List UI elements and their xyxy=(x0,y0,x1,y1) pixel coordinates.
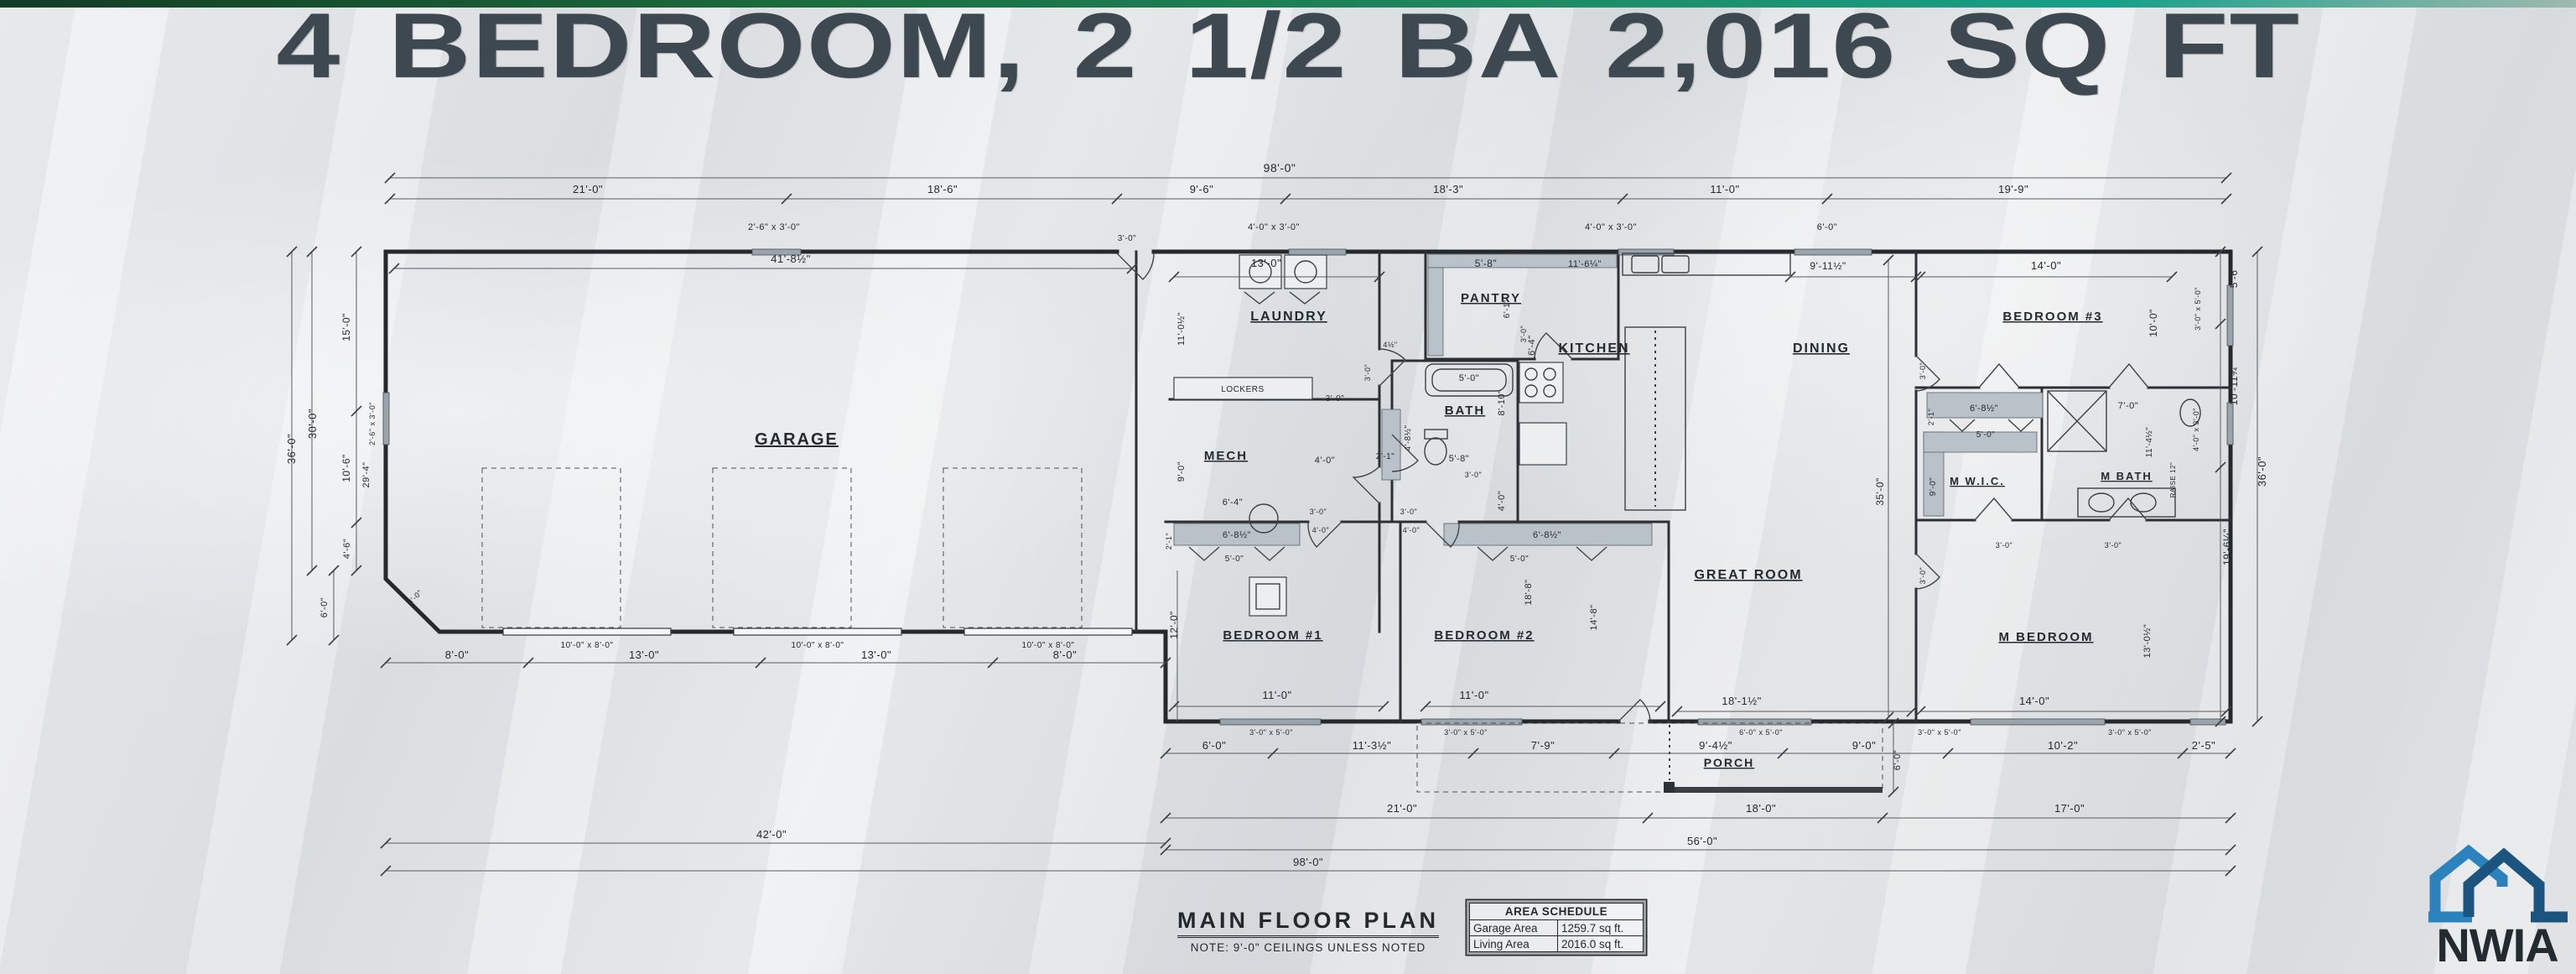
dim-label: 5'-8" xyxy=(1449,454,1469,464)
area-schedule-table: AREA SCHEDULE Garage Area 1259.7 sq ft. … xyxy=(1469,903,1644,952)
dim-label: 11'-0" xyxy=(1459,689,1488,701)
nwia-logo: NWIA xyxy=(2422,833,2573,969)
plan-caption: MAIN FLOOR PLAN NOTE: 9'-0" CEILINGS UNL… xyxy=(1174,908,1442,954)
dim-label: 5'-0" xyxy=(1225,555,1244,564)
plan-note: NOTE: 9'-0" CEILINGS UNLESS NOTED xyxy=(1174,941,1442,954)
dim-label: 6'-8½" xyxy=(1533,530,1561,540)
dim-label: 3'-0" xyxy=(1363,364,1372,381)
dim-label: 4'-0" x 3'-0" xyxy=(2192,408,2200,451)
dim-label: 8'-0" xyxy=(445,648,469,661)
garage-doors xyxy=(482,468,1132,635)
dim-label: 10'-2" xyxy=(2048,739,2078,752)
dim-label: 2'-6" x 3'-0" xyxy=(368,402,377,445)
room-label: BEDROOM #2 xyxy=(1434,628,1534,643)
dim-label: 10'-0" xyxy=(2148,309,2159,337)
dim-label: 9'-0" xyxy=(1852,739,1876,752)
dim-label: 3'-0" xyxy=(1326,394,1344,404)
toilet-icon xyxy=(1425,430,1447,465)
furnace-icon xyxy=(1249,577,1286,616)
dim-label: 17'-0" xyxy=(2054,802,2085,815)
room-label: LAUNDRY xyxy=(1250,310,1327,324)
dim-label: 4'-0" xyxy=(1312,526,1329,534)
dim-label: 10'-11¾" xyxy=(2228,363,2240,405)
dim-label: 9'-11½" xyxy=(1810,260,1846,272)
dim-label: 14'-8" xyxy=(1589,604,1599,630)
dim-label: 3'-0" x 5'-0" xyxy=(2194,287,2202,331)
dim-label: 6'-0" xyxy=(1817,222,1837,232)
dim-label: 3'-0" xyxy=(1118,234,1136,243)
room-label: PANTRY xyxy=(1461,291,1521,305)
room-label: KITCHEN xyxy=(1558,341,1629,356)
dim-label: 9'-0" xyxy=(1176,461,1187,482)
floor-plan: GARAGELAUNDRYMECHPANTRYKITCHENDININGBATH… xyxy=(0,0,2576,974)
room-label: MECH xyxy=(1204,449,1248,463)
dim-label: 42'-0" xyxy=(756,828,787,841)
dim-label: 14'-0" xyxy=(2031,259,2061,272)
dim-label: 6'-0" xyxy=(1893,750,1903,770)
dim-label: 30'-0" xyxy=(306,409,319,439)
dim-label: 5'-0" xyxy=(1510,555,1529,564)
dim-label: 8'-0" xyxy=(1053,648,1077,661)
dim-label: 18'-3" xyxy=(1433,183,1463,195)
dim-label: 11'-6¼" xyxy=(1568,259,1602,269)
dim-label: 11'-3½" xyxy=(1353,739,1392,752)
dim-label: 3'-0" x 5'-0" xyxy=(1918,728,1961,737)
dim-label: 36'-0" xyxy=(285,434,298,464)
dim-label: 8'-10" xyxy=(1497,389,1507,415)
dim-label: 12'-0" xyxy=(1168,611,1180,639)
dim-label: 6'-8½" xyxy=(1223,530,1251,540)
dim-label: 11'-0½" xyxy=(1176,312,1187,346)
dim-label: 16'-4" xyxy=(1527,335,1537,361)
dim-label: 7'-9" xyxy=(1531,739,1555,752)
room-label: GREAT ROOM xyxy=(1694,568,1802,582)
dim-label: 13'-0" xyxy=(861,648,891,661)
room-label: PORCH xyxy=(1704,756,1755,769)
dim-label: 3'-0" x 5'-0" xyxy=(1249,728,1293,737)
dim-label: LOCKERS xyxy=(1221,385,1264,394)
dim-label: 3'-0" xyxy=(1465,471,1482,479)
dim-label: 3'-0" xyxy=(1400,508,1417,516)
dim-label: 11'-4½" xyxy=(2145,427,2154,458)
dim-label: 6'-0" x 5'-0" xyxy=(1739,728,1783,737)
refrigerator-icon xyxy=(1519,423,1566,465)
dim-label: 36'-0" xyxy=(2256,456,2268,487)
dim-label: 4'-6" xyxy=(342,539,352,559)
dim-label: 6'-0" xyxy=(1202,739,1226,752)
dim-label: 19'-9" xyxy=(1998,183,2028,195)
dim-label: 10'-0" x 8'-0" xyxy=(561,641,614,650)
kitchen-island xyxy=(1625,327,1685,510)
dim-label: RAISE 12" xyxy=(2169,462,2177,497)
dim-label: 5'-0" xyxy=(1459,373,1479,383)
dim-label: 15'-0" xyxy=(340,313,352,341)
dim-label: 3'-0" xyxy=(2105,541,2122,550)
room-label: M BEDROOM xyxy=(1999,630,2094,644)
dim-label: 4'-0" xyxy=(1497,491,1507,511)
room-label: BEDROOM #1 xyxy=(1223,628,1322,643)
table-row: Living Area 2016.0 sq ft. xyxy=(1470,936,1643,951)
dim-label: 5'-0" xyxy=(1976,430,1995,440)
dim-label: 11'-0" xyxy=(1710,183,1739,195)
dim-label: 10'-6" xyxy=(340,454,352,482)
dim-label: 4'-0" x 3'-0" xyxy=(1248,222,1300,232)
area-row-value: 1259.7 sq ft. xyxy=(1558,920,1643,935)
banner-photo: 4 BEDROOM, 2 1/2 BA 2,016 SQ FT xyxy=(0,0,2576,974)
dim-label: 2'-1" xyxy=(1376,452,1394,461)
dim-label: 4'-0" xyxy=(1403,526,1420,534)
room-label: GARAGE xyxy=(755,430,839,449)
range-icon xyxy=(1519,362,1563,403)
dim-label: 9'-4½" xyxy=(1699,739,1732,752)
dim-label: 3'-0" xyxy=(1310,508,1327,516)
room-label: BEDROOM #3 xyxy=(2002,310,2102,324)
dim-label: 98'-0" xyxy=(1264,161,1296,174)
dim-label: 4½" xyxy=(1383,341,1397,349)
dim-label: 6'-8½" xyxy=(1970,404,1998,414)
dim-label: 13'-0" xyxy=(1251,257,1281,269)
dim-label: 13'-0½" xyxy=(2142,624,2153,659)
dim-label: 2'-1" xyxy=(1927,409,1935,425)
table-row: Garage Area 1259.7 sq ft. xyxy=(1470,920,1643,936)
dim-label: 18'-1½" xyxy=(1722,695,1761,707)
area-row-value: 2016.0 sq ft. xyxy=(1558,936,1643,951)
dim-label: 18'-0" xyxy=(1746,802,1776,815)
dim-label: 18'-8" xyxy=(1524,579,1534,605)
logo-text: NWIA xyxy=(2436,919,2558,969)
dim-label: 18'-6" xyxy=(927,183,958,195)
dim-label: 98'-0" xyxy=(1293,856,1323,868)
dim-label: 3'-0" x 5'-0" xyxy=(2108,728,2152,737)
dim-label: 56'-0" xyxy=(1687,835,1717,847)
room-label: M BATH xyxy=(2101,470,2153,482)
dim-label: 35'-0" xyxy=(1874,477,1886,506)
area-row-label: Living Area xyxy=(1470,936,1558,951)
dim-label: 41'-8½" xyxy=(771,253,810,265)
plan-labels: GARAGELAUNDRYMECHPANTRYKITCHENDININGBATH… xyxy=(285,161,2268,868)
dim-label: 3'-0" xyxy=(1996,541,2012,550)
area-schedule-title: AREA SCHEDULE xyxy=(1470,904,1643,920)
dim-label: 21'-0" xyxy=(573,183,603,195)
dim-label: 3'-0" x 5'-0" xyxy=(1444,728,1488,737)
dim-label: 6'-4" xyxy=(1223,497,1243,508)
room-label: BATH xyxy=(1445,404,1486,418)
dim-label: 29'-4" xyxy=(361,461,371,487)
room-label: DINING xyxy=(1793,341,1850,356)
dim-label: 5'-6" xyxy=(2228,266,2240,288)
dim-label: 3'-0" xyxy=(406,588,424,607)
dim-label: 14'-0" xyxy=(2019,695,2049,707)
dim-label: 9'-6" xyxy=(1190,183,1213,195)
dim-label: 19'-6¼" xyxy=(2221,529,2233,565)
dim-label: 6'-1" xyxy=(1503,299,1512,318)
dim-label: 2'-5" xyxy=(2192,739,2215,752)
dim-label: 13'-0" xyxy=(629,648,659,661)
dim-label: 6'-0" xyxy=(319,597,330,617)
dim-label: 21'-0" xyxy=(1387,802,1417,815)
dim-label: 2'-6" x 3'-0" xyxy=(748,222,800,232)
dim-label: 4'-0" xyxy=(1315,456,1335,466)
dim-label: 4'-0" x 3'-0" xyxy=(1585,222,1637,232)
shower-icon xyxy=(2048,391,2106,451)
kitchen-sink-icon xyxy=(1623,253,1790,275)
dim-label: 3'-0" xyxy=(1919,567,1927,584)
dim-label: 5'-8" xyxy=(1475,258,1497,269)
dim-label: 10'-0" x 8'-0" xyxy=(792,641,844,650)
dim-label: 7'-0" xyxy=(2118,401,2138,411)
fixtures xyxy=(1174,253,2200,616)
dim-label: 11'-0" xyxy=(1262,689,1291,701)
area-row-label: Garage Area xyxy=(1470,920,1558,935)
dim-label: 4'-8½" xyxy=(1404,424,1413,451)
dim-label: 9'-0" xyxy=(1929,477,1938,496)
master-vanity-icon xyxy=(2078,488,2175,517)
room-label: M W.I.C. xyxy=(1950,475,2005,487)
dim-label: 3'-0" xyxy=(1919,362,1927,379)
dim-label: 2'-1" xyxy=(1165,533,1173,550)
plan-title: MAIN FLOOR PLAN xyxy=(1177,908,1439,938)
